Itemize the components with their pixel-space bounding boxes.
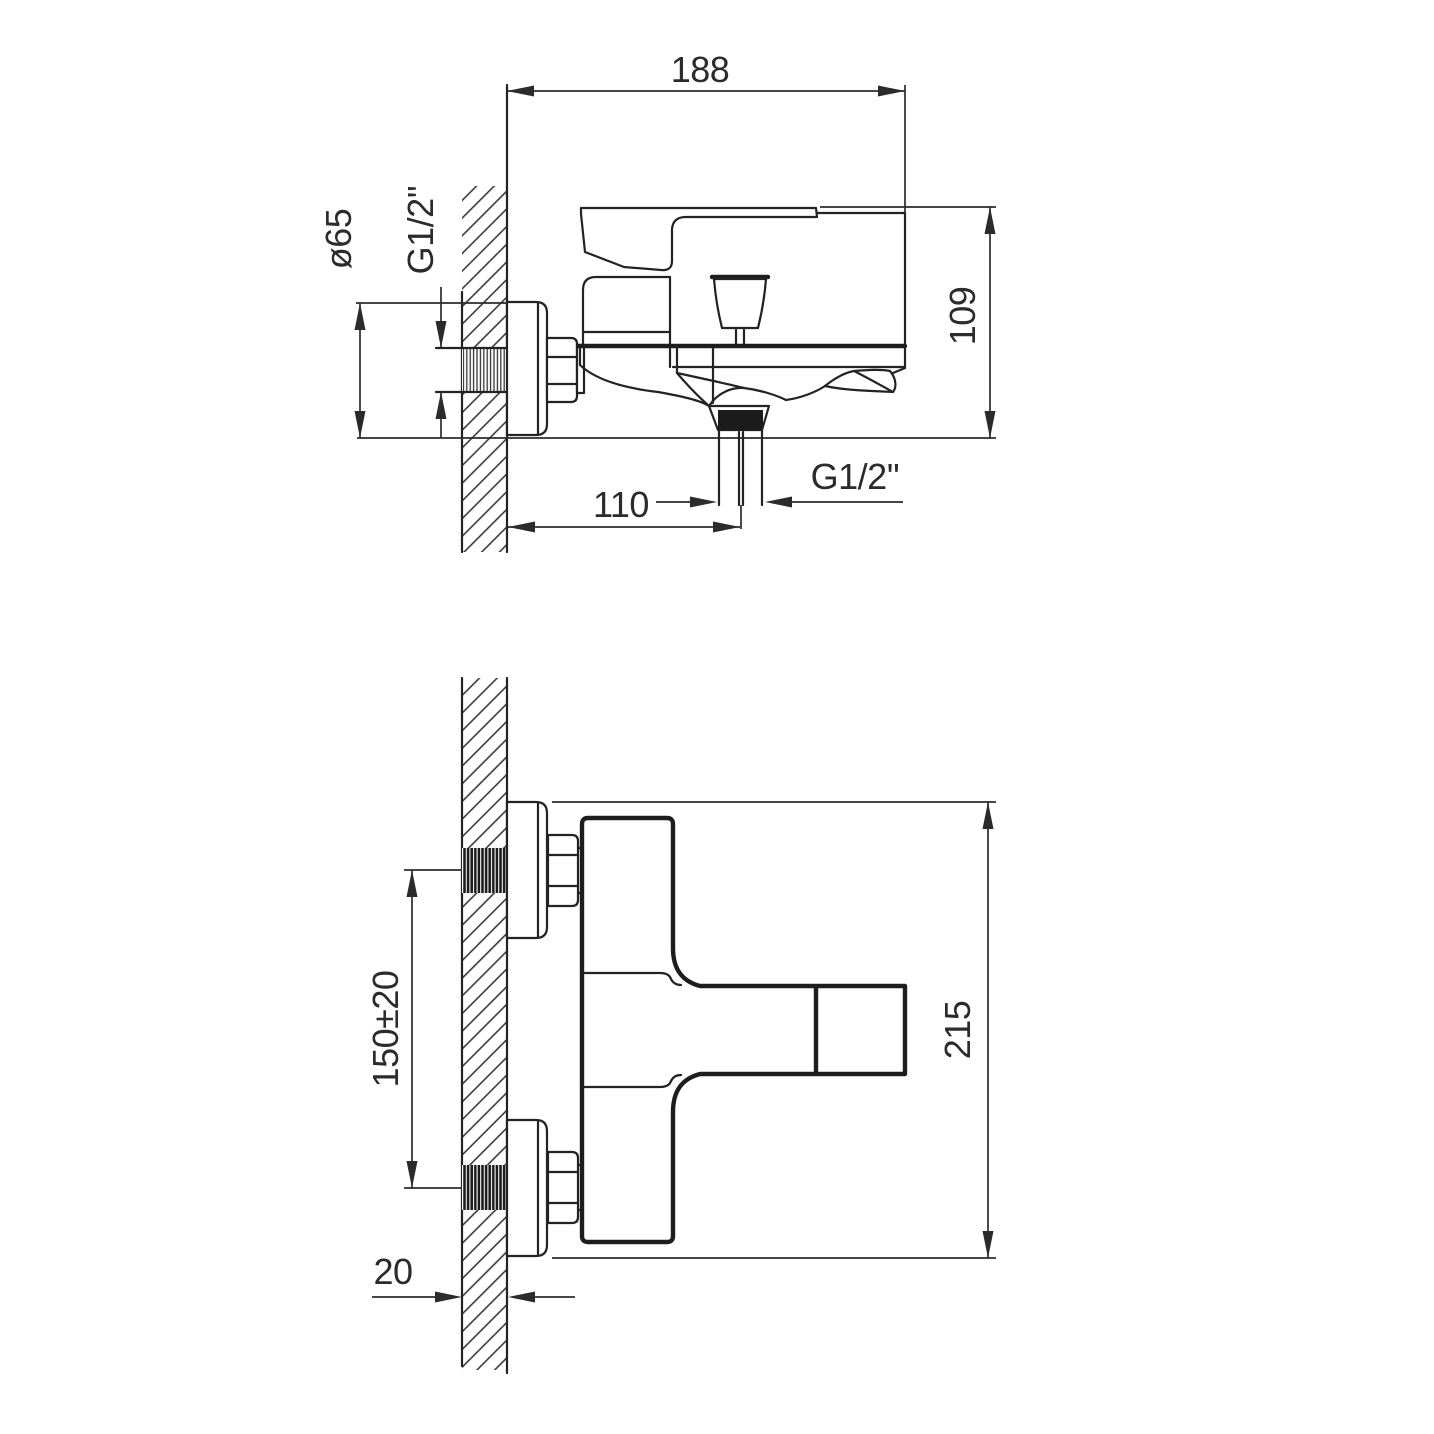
- wall-inlet-thread: [436, 348, 507, 392]
- dim-label-outlet-thread: G1/2'': [811, 456, 900, 497]
- wall-section-front: [462, 678, 507, 1373]
- spout-curve: [709, 388, 786, 406]
- arrowhead: [355, 303, 366, 330]
- diverter-knob: [714, 279, 766, 328]
- arrowhead: [507, 86, 534, 97]
- side-view: 188 ø65 G1/2'' 109: [318, 49, 996, 552]
- cartridge-housing: [583, 277, 670, 332]
- arrowhead: [985, 207, 996, 234]
- arrowhead: [713, 522, 740, 533]
- spout-curve: [854, 371, 893, 392]
- dim-label-110: 110: [593, 484, 649, 525]
- lever-handle: [581, 208, 817, 270]
- wall-hatch: [462, 678, 507, 1370]
- escutcheon-plate: [507, 302, 547, 435]
- spout-underside: [580, 365, 905, 430]
- wall-mount-side: [507, 302, 584, 435]
- dim-overall-depth: 188: [507, 49, 905, 213]
- body-outline: [582, 818, 905, 1242]
- escutcheon-plate: [507, 1120, 547, 1256]
- outlet-pipes: [719, 430, 762, 529]
- dim-overall-height: 109: [820, 207, 996, 438]
- thread-black: [463, 1165, 507, 1210]
- thread-black: [463, 848, 507, 893]
- dim-label-20: 20: [373, 1251, 412, 1292]
- drawing-page: 188 ø65 G1/2'' 109: [0, 0, 1434, 1434]
- faucet-body-front: [582, 818, 905, 1242]
- dim-label-215: 215: [937, 1001, 978, 1060]
- arrowhead: [985, 411, 996, 438]
- dim-inlet-spacing: 150±20: [365, 870, 462, 1188]
- mounting-nut: [548, 1152, 578, 1223]
- dim-outlet-thread: G1/2'': [656, 456, 903, 508]
- dim-label-109: 109: [942, 287, 983, 346]
- technical-drawing: 188 ø65 G1/2'' 109: [0, 0, 1434, 1434]
- arrowhead: [436, 392, 447, 419]
- arrowhead: [435, 1292, 462, 1303]
- arrowhead: [508, 1292, 535, 1303]
- arrowhead: [407, 870, 418, 897]
- mounting-nut: [547, 338, 577, 402]
- arrowhead: [508, 522, 535, 533]
- arrowhead: [407, 1161, 418, 1188]
- thread-hatch: [463, 349, 505, 391]
- arrowhead: [355, 411, 366, 438]
- dim-label-inlet-thread: G1/2'': [400, 186, 441, 275]
- wall-section-side: [462, 85, 507, 552]
- dim-label-188: 188: [671, 49, 730, 90]
- arrowhead: [765, 497, 792, 508]
- mounting-nut: [548, 835, 578, 906]
- arrowhead: [983, 1231, 994, 1258]
- spout-curve: [786, 386, 825, 400]
- arrowhead: [690, 497, 717, 508]
- dim-inlet-thread: G1/2'': [400, 186, 447, 438]
- arrowhead: [878, 86, 905, 97]
- dim-label-150-20: 150±20: [365, 971, 406, 1088]
- arrowhead: [436, 321, 447, 348]
- spout-curve: [580, 365, 709, 406]
- spout-curve: [893, 368, 905, 373]
- dim-spout-reach: 110: [508, 484, 740, 533]
- dim-label-diameter-65: ø65: [318, 209, 359, 270]
- arrowhead: [983, 802, 994, 829]
- escutcheon-plate: [507, 802, 547, 938]
- front-view: 215 150±20 20: [365, 678, 996, 1373]
- aerator: [718, 410, 763, 430]
